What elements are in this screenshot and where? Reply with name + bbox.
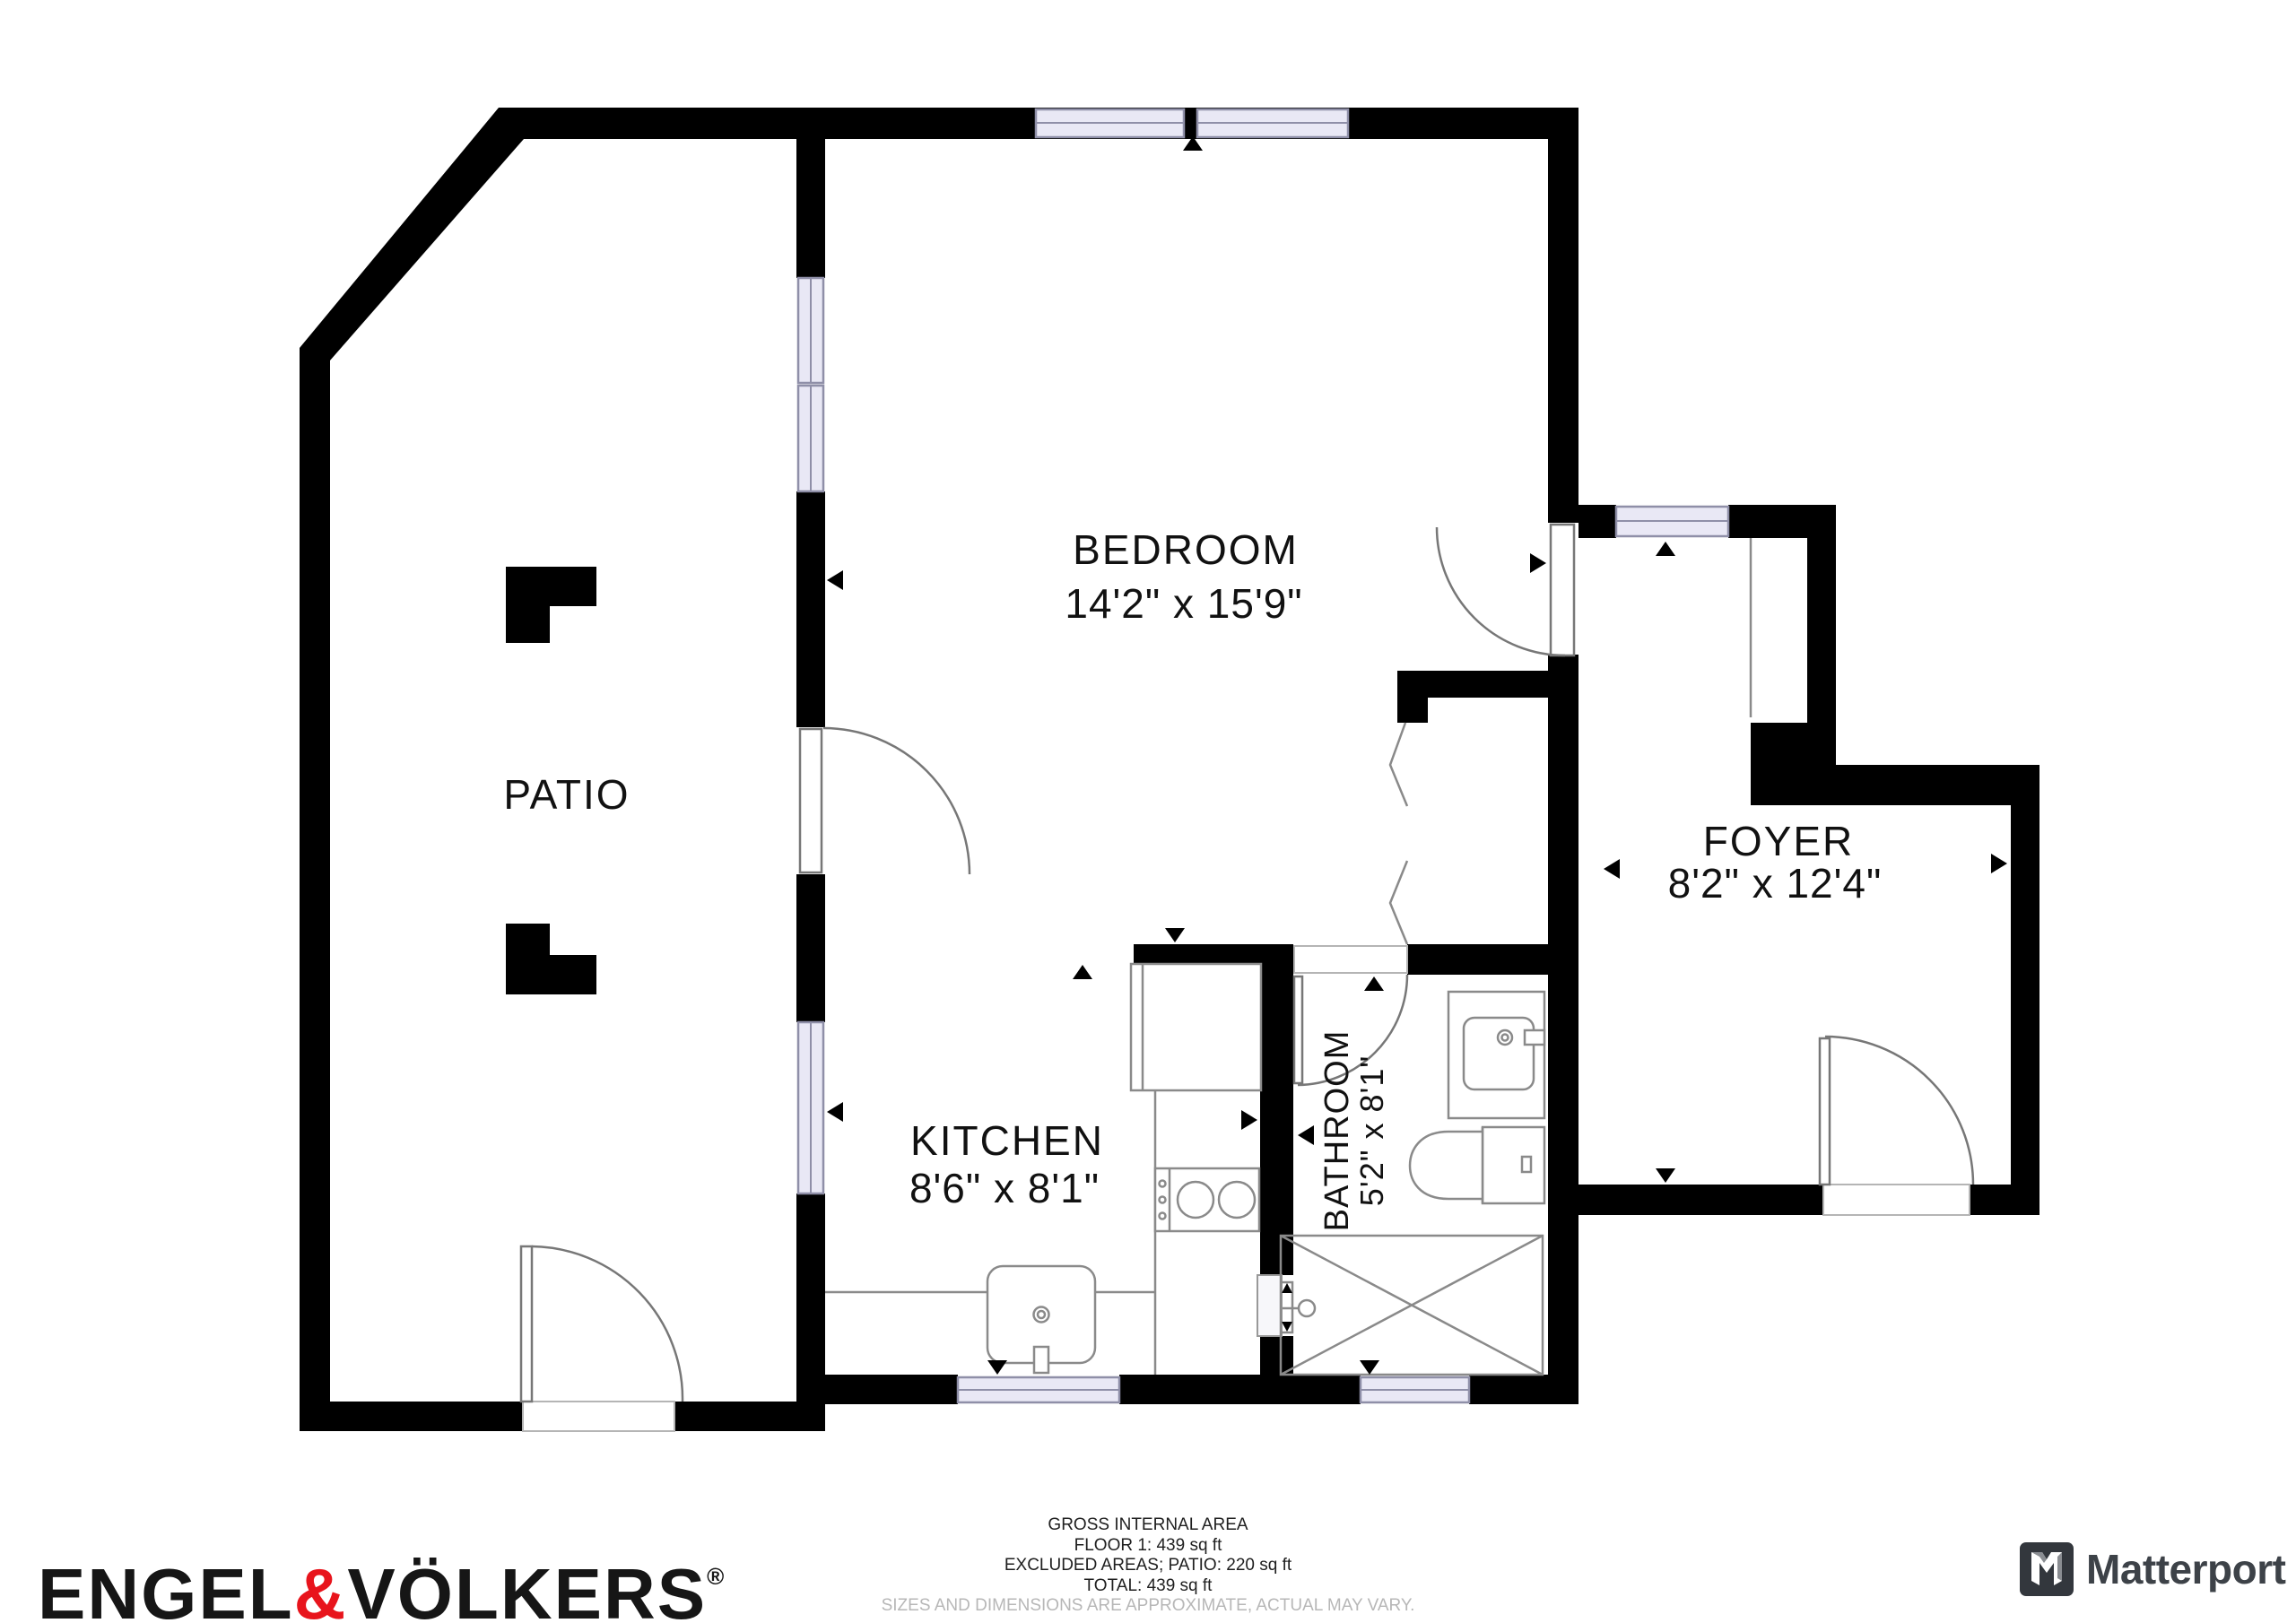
floor-plan-page: BEDROOM 14'2" x 15'9" PATIO KITCHEN 8'6"… — [0, 0, 2296, 1623]
foyer-dims: 8'2" x 12'4" — [1668, 860, 1883, 907]
marker-right-icon — [1241, 1110, 1257, 1130]
stove — [1155, 1168, 1259, 1231]
pass-through-panel — [1257, 1275, 1292, 1336]
bedroom-dims: 14'2" x 15'9" — [1065, 580, 1302, 627]
kitchen-south-window — [958, 1377, 1119, 1402]
area-summary: GROSS INTERNAL AREA FLOOR 1: 439 sq ft E… — [882, 1515, 1415, 1617]
toilet — [1410, 1127, 1544, 1203]
marker-up-icon — [1073, 965, 1092, 979]
kitchen-sink — [987, 1266, 1095, 1373]
bedroom-west-door — [800, 728, 970, 874]
marker-down-icon — [987, 1360, 1007, 1375]
refrigerator — [1131, 964, 1261, 1090]
closet-bifold-doors — [1390, 723, 1407, 944]
ev-word-volkers: VÖLKERS — [347, 1554, 707, 1623]
kitchen-west-window — [798, 1022, 823, 1193]
kitchen-dims: 8'6" x 8'1" — [909, 1165, 1100, 1211]
marker-left-icon — [827, 1102, 843, 1122]
matterport-logo: Matterport — [2018, 1541, 2285, 1598]
marker-down-icon — [1165, 928, 1185, 942]
marker-right-icon — [1530, 553, 1546, 573]
entry-window — [1616, 507, 1728, 536]
marker-up-icon — [1364, 976, 1384, 991]
marker-left-icon — [1298, 1125, 1314, 1145]
total-area-line: TOTAL: 439 sq ft — [882, 1576, 1415, 1597]
matterport-icon — [2018, 1541, 2075, 1598]
marker-down-icon — [1656, 1168, 1675, 1183]
bathroom-south-window — [1361, 1377, 1469, 1402]
interior-walls — [796, 139, 2039, 1431]
bedroom-west-window — [798, 278, 823, 491]
disclaimer-line: SIZES AND DIMENSIONS ARE APPROXIMATE, AC… — [882, 1596, 1415, 1617]
bathroom-vanity — [1448, 992, 1544, 1118]
marker-right-icon — [1991, 854, 2007, 873]
bathroom-label: BATHROOM — [1318, 1030, 1356, 1232]
gross-internal-area-line: GROSS INTERNAL AREA — [882, 1515, 1415, 1536]
floor-area-line: FLOOR 1: 439 sq ft — [882, 1536, 1415, 1557]
exterior-walls — [300, 108, 1578, 1431]
marker-left-icon — [827, 570, 843, 590]
kitchen-label: KITCHEN — [910, 1117, 1104, 1164]
excluded-areas-line: EXCLUDED AREAS; PATIO: 220 sq ft — [882, 1556, 1415, 1576]
floor-plan: BEDROOM 14'2" x 15'9" PATIO KITCHEN 8'6"… — [0, 0, 2296, 1623]
ev-word-engel: ENGEL — [38, 1554, 294, 1623]
ev-ampersand: & — [294, 1554, 348, 1623]
bedroom-east-door — [1437, 525, 1574, 655]
marker-up-icon — [1656, 542, 1675, 556]
foyer-label: FOYER — [1703, 818, 1854, 864]
marker-left-icon — [1604, 859, 1620, 879]
ev-registered-mark: ® — [707, 1563, 724, 1590]
shower-head-icon — [1299, 1300, 1315, 1316]
matterport-wordmark: Matterport — [2086, 1545, 2285, 1593]
marker-down-icon — [1360, 1360, 1379, 1375]
engel-volkers-logo: ENGEL&VÖLKERS® — [38, 1548, 724, 1623]
bedroom-label: BEDROOM — [1073, 526, 1299, 573]
foyer-entry-door — [1820, 1037, 1973, 1215]
bathroom-dims: 5'2" x 8'1" — [1353, 1055, 1390, 1206]
patio-door — [521, 1246, 683, 1431]
patio-label: PATIO — [503, 771, 630, 818]
shower — [1281, 1236, 1543, 1375]
